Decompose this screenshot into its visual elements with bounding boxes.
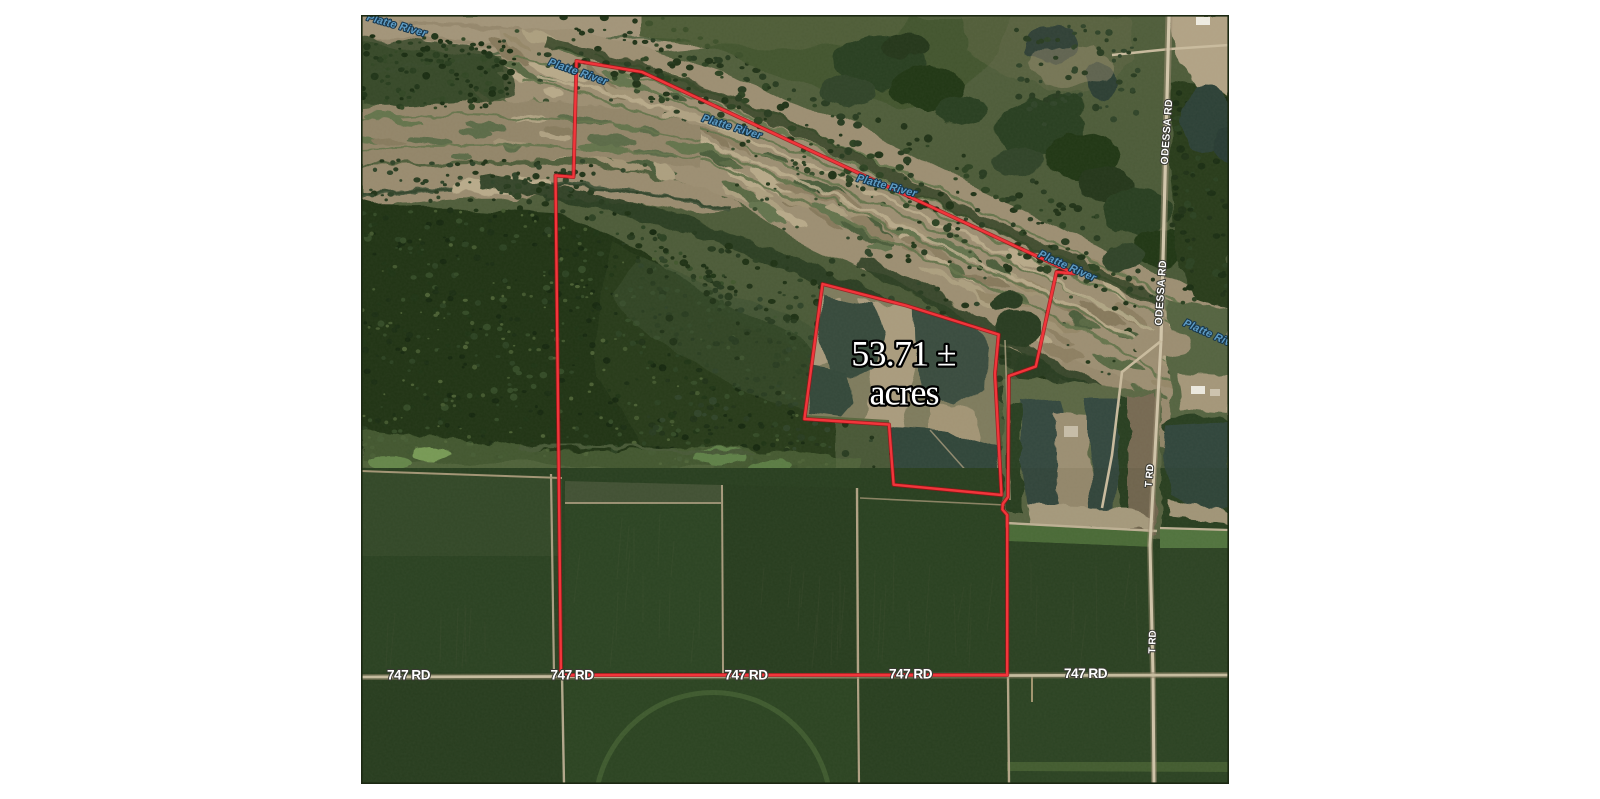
- svg-text:747 RD: 747 RD: [889, 667, 933, 682]
- svg-text:747 RD: 747 RD: [1064, 666, 1108, 681]
- svg-text:acres: acres: [870, 373, 939, 413]
- svg-text:747 RD: 747 RD: [550, 668, 594, 683]
- svg-text:T RD: T RD: [1147, 630, 1159, 654]
- svg-text:747 RD: 747 RD: [724, 668, 768, 683]
- svg-text:T RD: T RD: [1144, 464, 1157, 488]
- svg-text:747 RD: 747 RD: [387, 668, 431, 683]
- svg-text:53.71 ±: 53.71 ±: [851, 334, 956, 374]
